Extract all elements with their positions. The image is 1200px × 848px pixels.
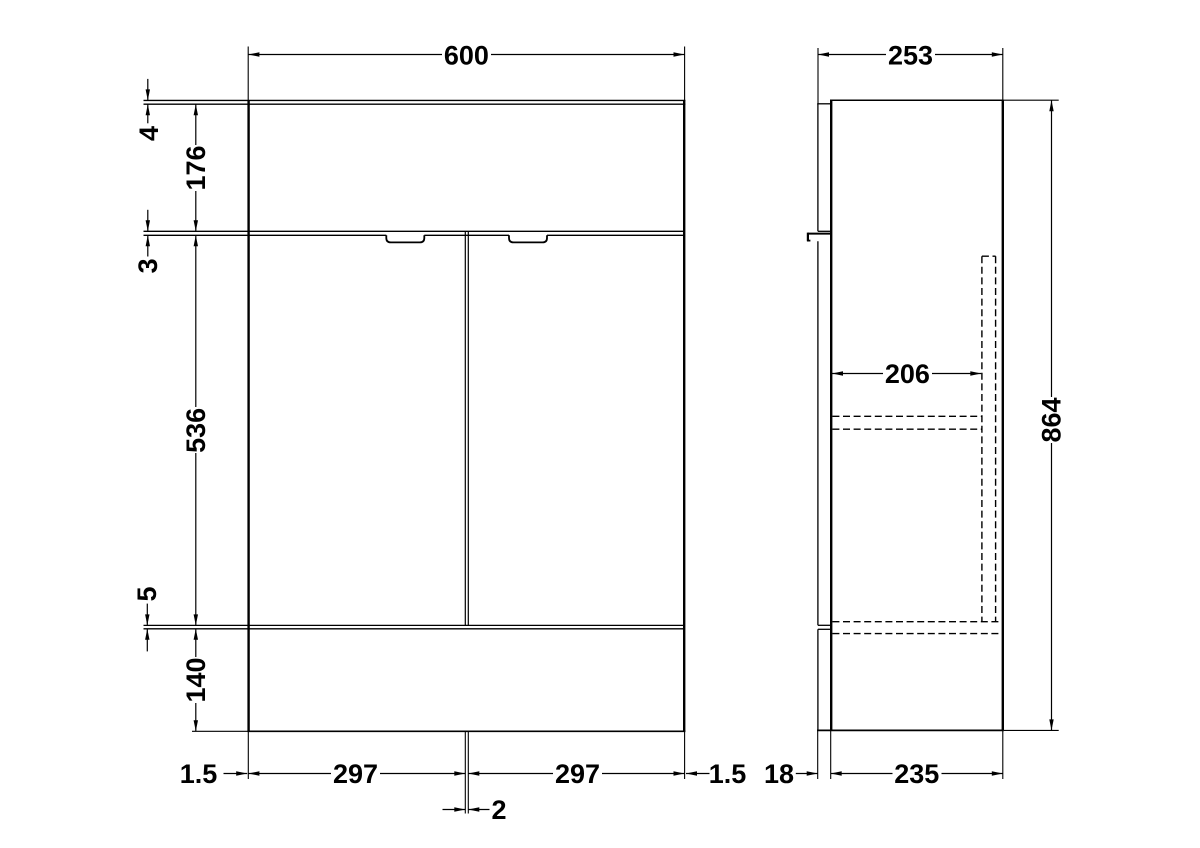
svg-text:536: 536 <box>181 408 211 453</box>
svg-text:2: 2 <box>491 795 506 825</box>
svg-text:3: 3 <box>133 258 163 273</box>
svg-text:1.5: 1.5 <box>180 759 218 789</box>
svg-text:206: 206 <box>885 359 930 389</box>
svg-text:5: 5 <box>132 586 162 601</box>
svg-text:297: 297 <box>555 759 600 789</box>
svg-text:4: 4 <box>134 126 164 141</box>
svg-text:140: 140 <box>181 657 211 702</box>
svg-text:18: 18 <box>764 759 794 789</box>
svg-text:1.5: 1.5 <box>709 759 747 789</box>
svg-text:297: 297 <box>333 759 378 789</box>
svg-text:600: 600 <box>444 41 489 71</box>
svg-text:864: 864 <box>1037 397 1067 442</box>
svg-text:235: 235 <box>894 759 939 789</box>
svg-text:176: 176 <box>181 145 211 190</box>
svg-text:253: 253 <box>888 41 933 71</box>
